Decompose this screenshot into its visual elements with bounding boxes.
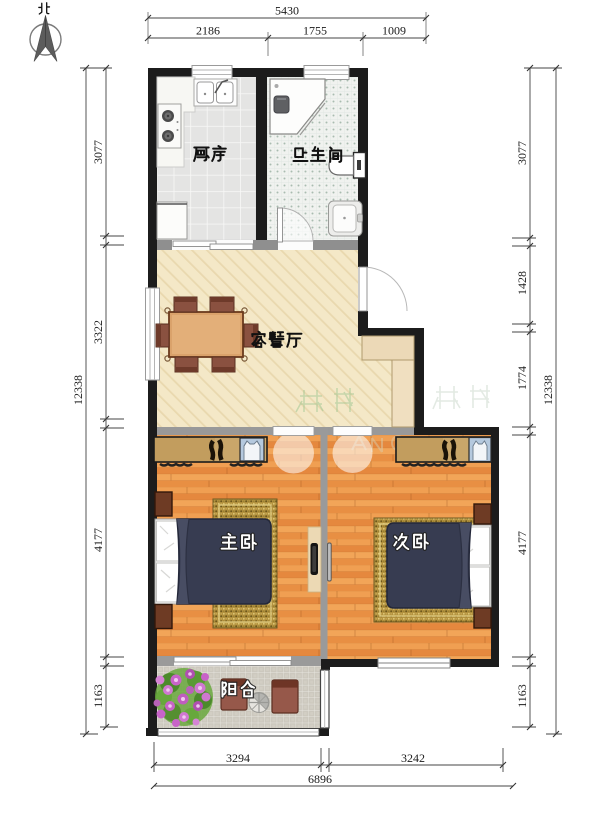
svg-text:6896: 6896 bbox=[308, 772, 332, 786]
svg-text:5430: 5430 bbox=[275, 4, 299, 18]
svg-text:3077: 3077 bbox=[515, 141, 529, 165]
svg-text:1009: 1009 bbox=[382, 24, 406, 38]
svg-text:12338: 12338 bbox=[71, 375, 85, 405]
svg-text:1774: 1774 bbox=[515, 366, 529, 390]
svg-text:4177: 4177 bbox=[91, 528, 105, 552]
svg-text:1428: 1428 bbox=[515, 271, 529, 295]
svg-text:4177: 4177 bbox=[515, 531, 529, 555]
svg-text:1755: 1755 bbox=[303, 24, 327, 38]
svg-text:3322: 3322 bbox=[91, 320, 105, 344]
svg-text:3242: 3242 bbox=[401, 751, 425, 765]
svg-text:3077: 3077 bbox=[91, 140, 105, 164]
svg-text:1163: 1163 bbox=[515, 684, 529, 708]
svg-text:2186: 2186 bbox=[196, 24, 220, 38]
svg-text:1163: 1163 bbox=[91, 684, 105, 708]
svg-text:12338: 12338 bbox=[541, 375, 555, 405]
svg-text:3294: 3294 bbox=[226, 751, 250, 765]
